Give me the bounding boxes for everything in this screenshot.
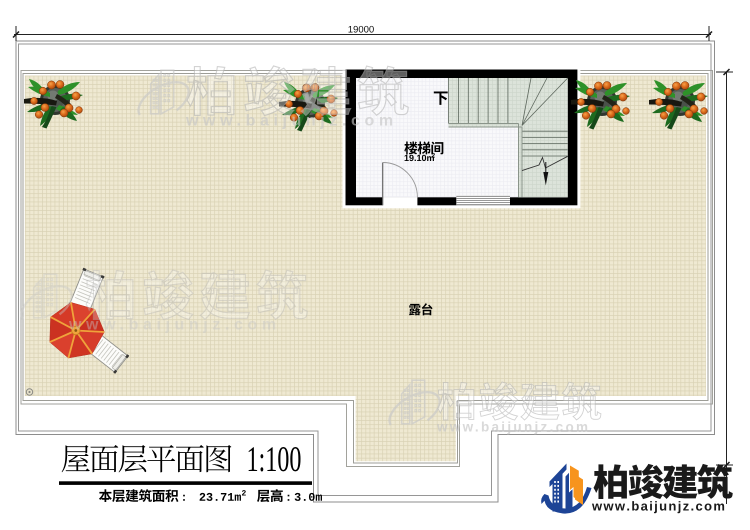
svg-text:www.baijunjz.com: www.baijunjz.com bbox=[185, 113, 398, 130]
svg-text:www.baijunjz.com: www.baijunjz.com bbox=[436, 419, 590, 434]
svg-text:www.baijunjz.com: www.baijunjz.com bbox=[68, 317, 281, 334]
